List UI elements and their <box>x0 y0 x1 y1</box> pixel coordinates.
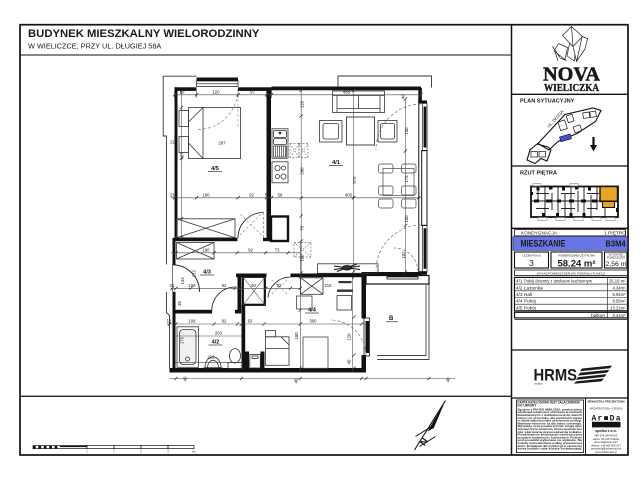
svg-text:579: 579 <box>352 176 357 184</box>
svg-text:13.22m²: 13.22m² <box>610 305 626 310</box>
svg-text:108: 108 <box>188 319 196 324</box>
svg-text:Pokój dzienny z aneksem kuchen: Pokój dzienny z aneksem kuchennym <box>524 279 592 284</box>
svg-text:175: 175 <box>180 336 185 344</box>
svg-text:B: B <box>389 316 394 322</box>
svg-text:1 PIĘTRO: 1 PIĘTRO <box>604 231 627 236</box>
svg-text:WIELICZKA: WIELICZKA <box>544 83 600 94</box>
svg-text:MIESZKANIE: MIESZKANIE <box>521 239 566 249</box>
svg-text:287: 287 <box>218 141 226 146</box>
svg-text:Studio: Studio <box>593 422 620 429</box>
svg-text:4/2: 4/2 <box>516 285 523 290</box>
svg-text:280: 280 <box>300 167 305 175</box>
svg-text:40: 40 <box>401 94 406 99</box>
svg-text:92: 92 <box>277 283 282 288</box>
svg-text:190: 190 <box>202 192 210 197</box>
svg-text:KONDYGNACJA: KONDYGNACJA <box>521 231 557 236</box>
svg-text:4/3: 4/3 <box>203 270 211 276</box>
svg-text:4/1: 4/1 <box>516 279 523 284</box>
svg-text:150: 150 <box>404 127 409 135</box>
svg-text:W WIELICZCE, PRZY UL. DŁUGIEJ: W WIELICZCE, PRZY UL. DŁUGIEJ 58A <box>28 42 161 51</box>
svg-text:Pokój: Pokój <box>524 299 536 304</box>
svg-text:73: 73 <box>275 247 280 252</box>
svg-text:4/5: 4/5 <box>516 305 523 310</box>
svg-text:3: 3 <box>529 258 534 268</box>
svg-text:spółka z o.o.: spółka z o.o. <box>595 429 617 433</box>
svg-text:92: 92 <box>249 192 254 197</box>
svg-text:102: 102 <box>401 251 406 259</box>
svg-text:18: 18 <box>267 90 272 95</box>
svg-text:108: 108 <box>188 283 196 288</box>
svg-text:120: 120 <box>300 100 305 108</box>
svg-text:35: 35 <box>177 301 182 306</box>
svg-text:97: 97 <box>250 90 255 95</box>
svg-text:4/4: 4/4 <box>308 308 317 314</box>
svg-text:która ludzkło cała kuszty inst: która ludzkło cała kuszty instalacyjną. <box>518 447 583 451</box>
svg-text:4/5: 4/5 <box>211 166 219 172</box>
svg-text:5.94m²: 5.94m² <box>612 292 626 297</box>
svg-text:PLAN SYTUACYJNY: PLAN SYTUACYJNY <box>520 98 575 104</box>
svg-text:222: 222 <box>207 354 215 359</box>
svg-text:4/1: 4/1 <box>332 160 340 166</box>
svg-text:5m: 5m <box>192 451 195 454</box>
svg-text:58: 58 <box>278 192 283 197</box>
svg-text:46: 46 <box>293 378 298 383</box>
svg-text:Pokój: Pokój <box>524 305 536 310</box>
svg-text:DO UMOWY: DO UMOWY <box>518 404 538 408</box>
svg-text:4/2: 4/2 <box>212 340 220 346</box>
svg-text:21: 21 <box>170 192 175 197</box>
svg-text:120: 120 <box>212 90 220 95</box>
svg-text:175: 175 <box>404 175 409 183</box>
svg-text:100: 100 <box>404 215 409 223</box>
svg-text:BUDYNEK MIESZKALNY WIELORODZIN: BUDYNEK MIESZKALNY WIELORODZINNY <box>28 28 260 40</box>
svg-text:405: 405 <box>345 192 353 197</box>
svg-text:58.24 m²: 58.24 m² <box>558 258 596 268</box>
svg-text:JEDNOSTKA PROJEKTOWA: JEDNOSTKA PROJEKTOWA <box>587 400 625 404</box>
svg-text:4/4: 4/4 <box>516 299 523 304</box>
svg-text:2,56 m: 2,56 m <box>606 261 627 268</box>
svg-text:18: 18 <box>167 319 172 324</box>
svg-text:75: 75 <box>300 226 305 231</box>
svg-text:100: 100 <box>300 254 305 262</box>
svg-text:215: 215 <box>324 283 332 288</box>
svg-text:60: 60 <box>251 283 256 288</box>
svg-text:190: 190 <box>202 247 210 252</box>
svg-text:63: 63 <box>248 319 253 324</box>
svg-text:RZUT PIĘTRA: RZUT PIĘTRA <box>520 171 557 177</box>
svg-text:studio: studio <box>535 381 543 385</box>
svg-text:4/3: 4/3 <box>516 292 523 297</box>
svg-text:21: 21 <box>170 140 175 145</box>
svg-text:92: 92 <box>248 247 253 252</box>
svg-text:180: 180 <box>294 332 299 340</box>
svg-text:25.19 m²: 25.19 m² <box>609 279 626 284</box>
svg-text:balkon: balkon <box>591 313 605 318</box>
svg-text:Łazienka: Łazienka <box>524 285 543 290</box>
svg-text:263: 263 <box>215 331 223 336</box>
svg-text:92: 92 <box>222 283 227 288</box>
svg-text:212: 212 <box>192 269 197 277</box>
svg-text:www.arbastudio.pl: www.arbastudio.pl <box>595 450 617 454</box>
svg-text:POMIESZCZEŃ: POMIESZCZEŃ <box>607 256 625 259</box>
svg-text:B3M4: B3M4 <box>606 240 627 249</box>
svg-text:40: 40 <box>182 376 187 381</box>
svg-text:40: 40 <box>347 359 352 364</box>
svg-text:4.34m²: 4.34m² <box>612 285 626 290</box>
svg-text:143: 143 <box>180 277 185 285</box>
svg-text:21: 21 <box>170 283 175 288</box>
svg-text:Hall: Hall <box>524 292 532 297</box>
svg-text:455: 455 <box>343 90 351 95</box>
svg-text:40: 40 <box>446 377 451 382</box>
svg-text:300: 300 <box>309 319 317 324</box>
svg-text:20: 20 <box>180 90 185 95</box>
svg-text:9.55m²: 9.55m² <box>612 299 626 304</box>
svg-text:WYKAZ POMIESZCZEŃ WG PODZIAŁU: WYKAZ POMIESZCZEŃ WG PODZIAŁU FUNKCJI <box>537 271 606 275</box>
svg-text:120: 120 <box>347 333 352 341</box>
svg-text:ARCHITEKTURA + DESIGN: ARCHITEKTURA + DESIGN <box>590 407 623 411</box>
svg-text:LICZBA POKOI: LICZBA POKOI <box>522 253 541 257</box>
svg-text:3.41m²: 3.41m² <box>612 313 626 318</box>
svg-text:467: 467 <box>180 152 185 160</box>
svg-text:92: 92 <box>222 319 227 324</box>
